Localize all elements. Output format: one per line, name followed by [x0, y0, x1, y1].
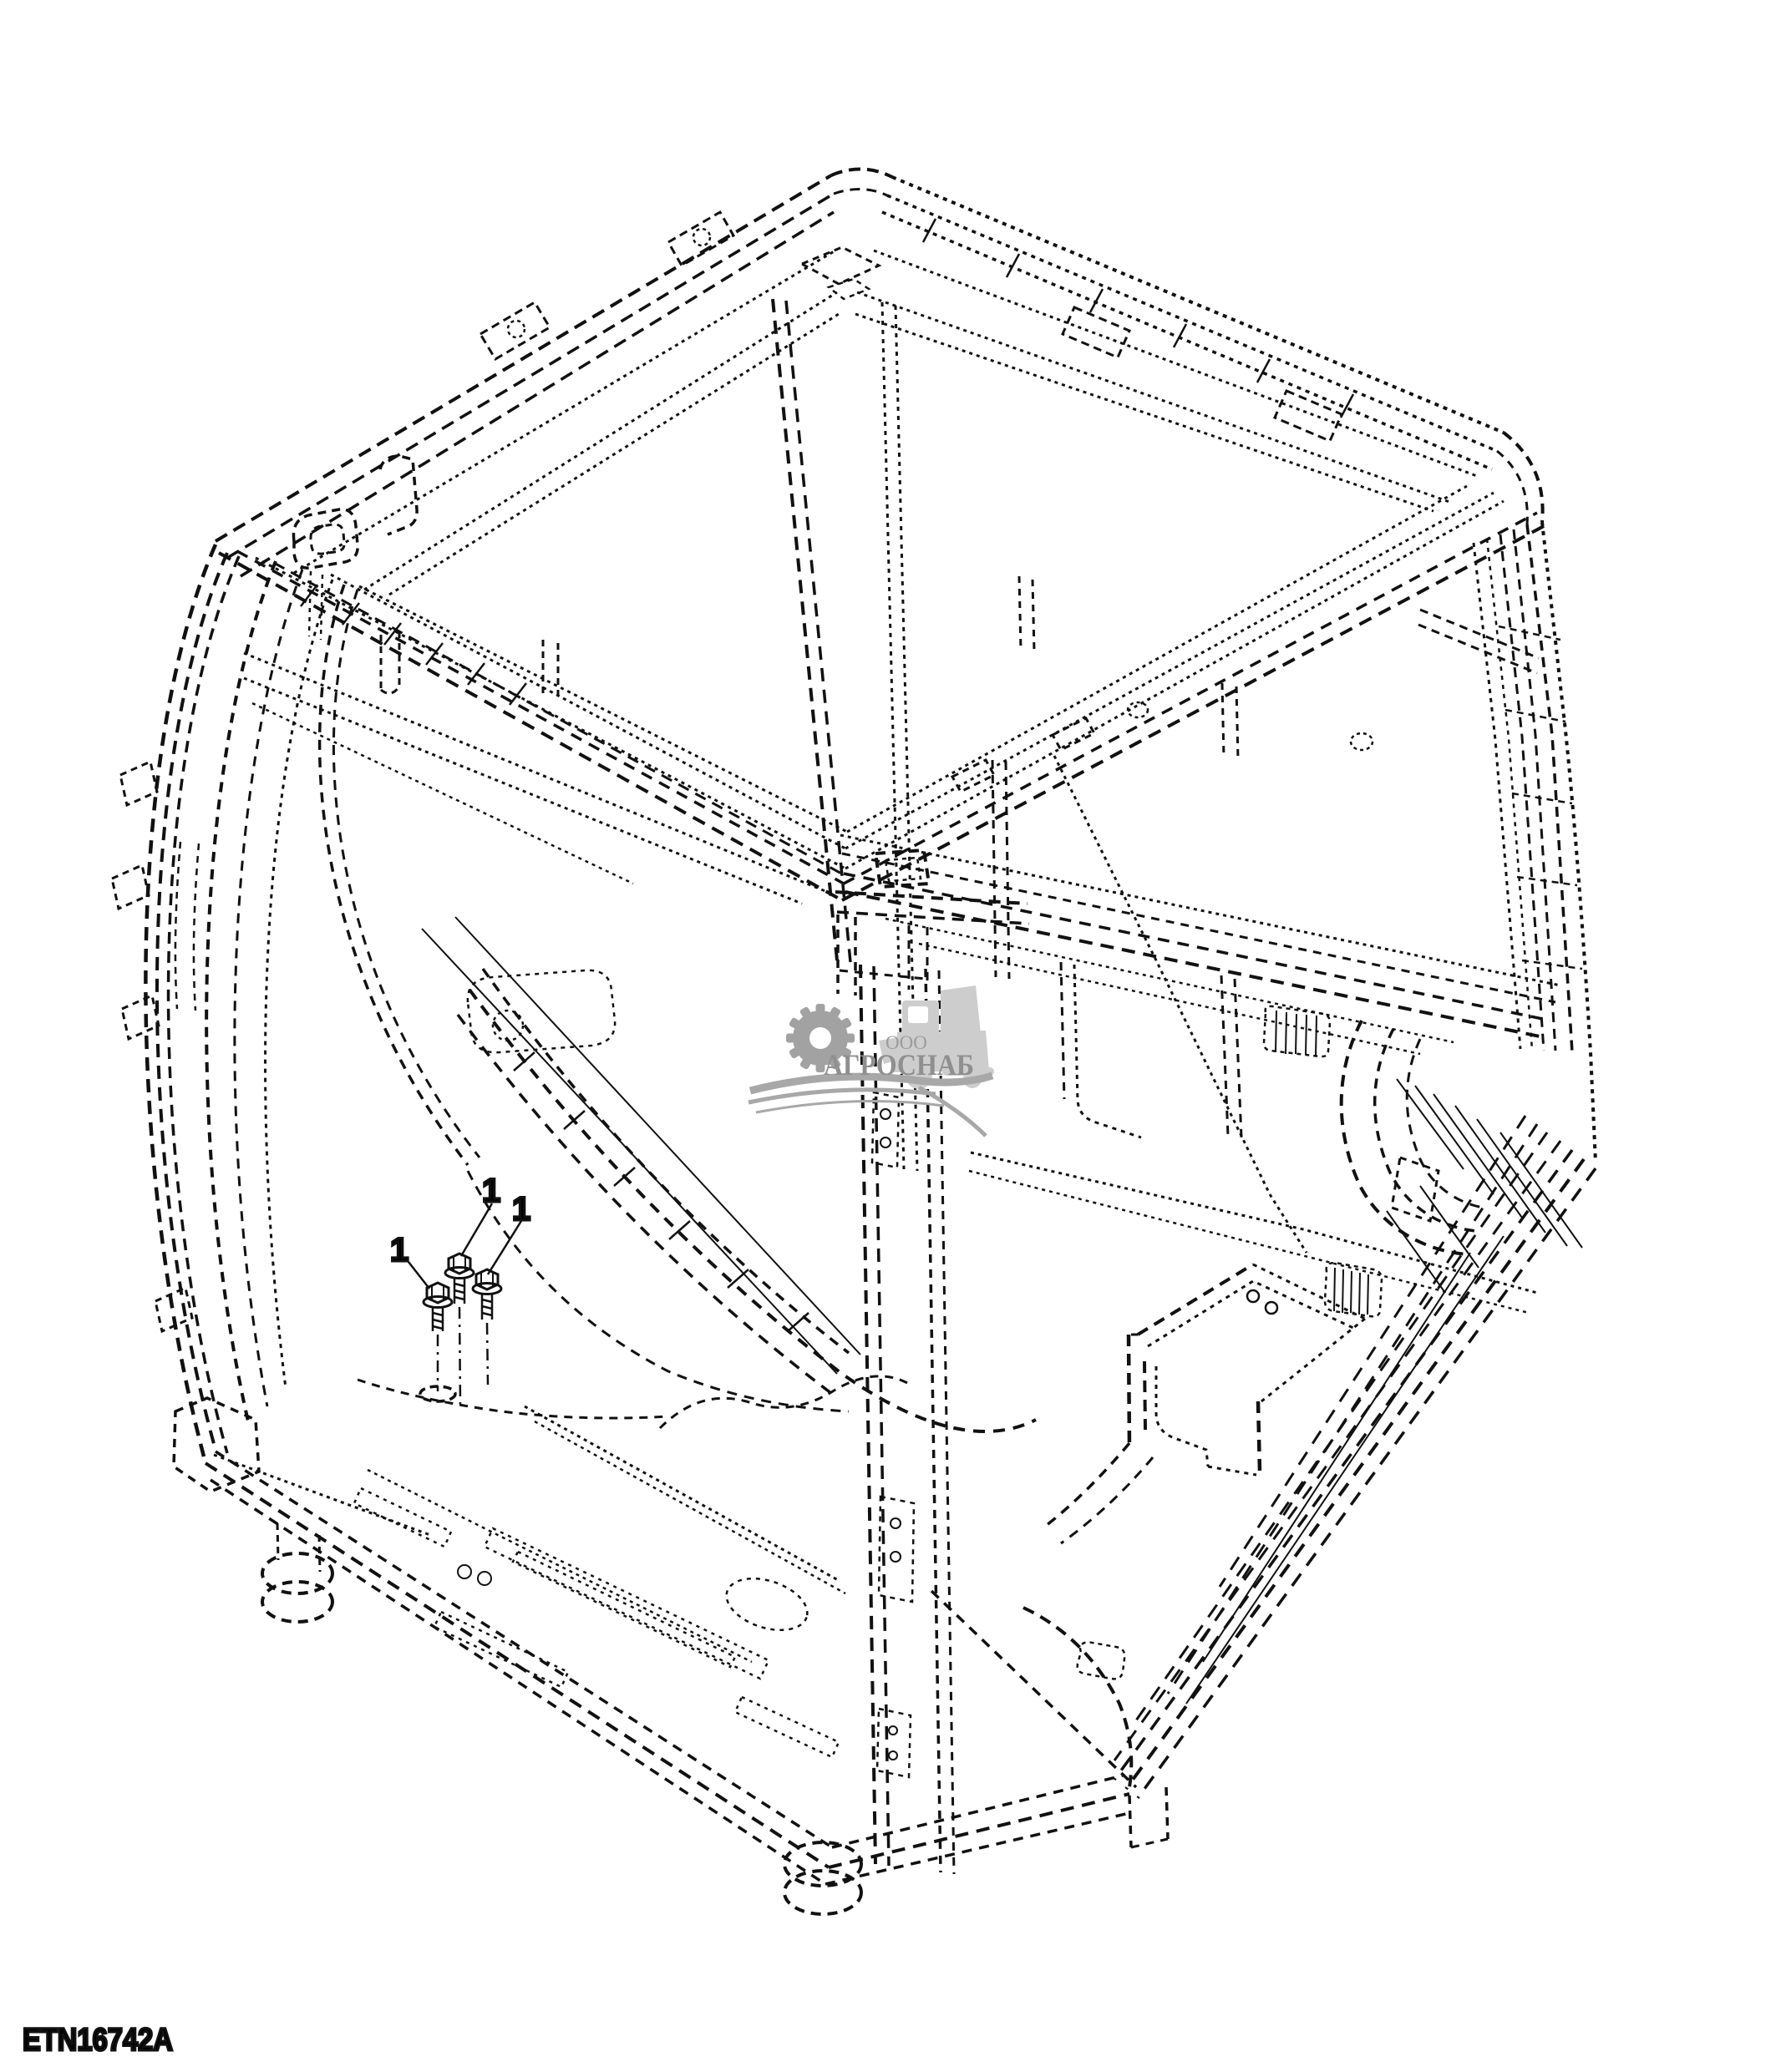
svg-text:1: 1 — [512, 1191, 530, 1228]
svg-text:1: 1 — [390, 1232, 408, 1269]
svg-text:1: 1 — [482, 1173, 500, 1209]
svg-text:АГРОСНАБ: АГРОСНАБ — [824, 1048, 974, 1082]
svg-text:ETN16742A: ETN16742A — [23, 2023, 173, 2058]
